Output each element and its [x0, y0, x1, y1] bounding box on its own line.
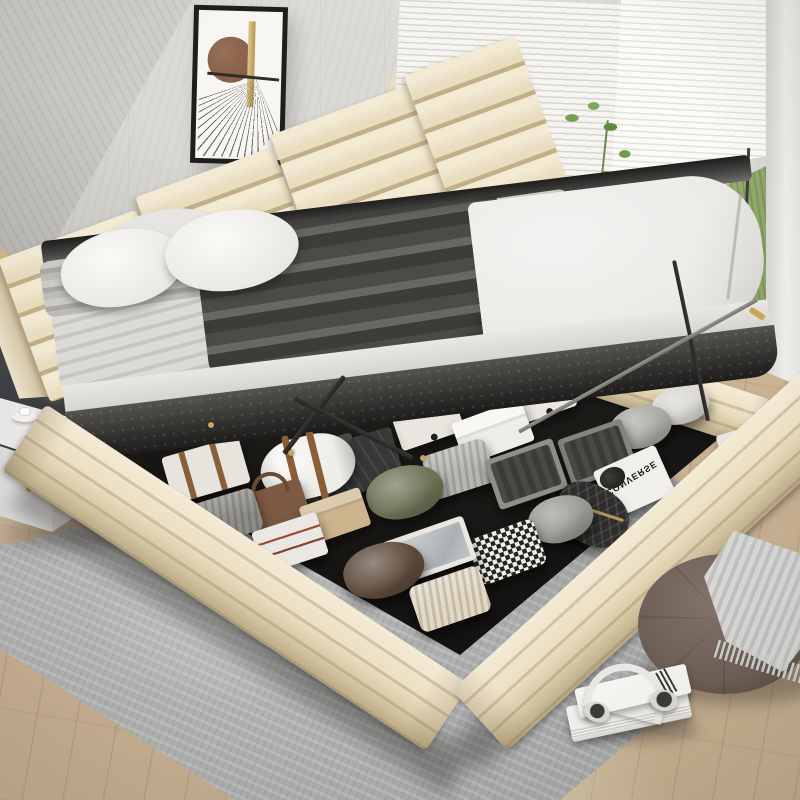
gold-hinge	[288, 450, 294, 456]
gold-hinge	[420, 455, 426, 461]
bedroom-product-photo: CONVERSE	[0, 0, 800, 800]
gold-hinge	[208, 422, 214, 428]
